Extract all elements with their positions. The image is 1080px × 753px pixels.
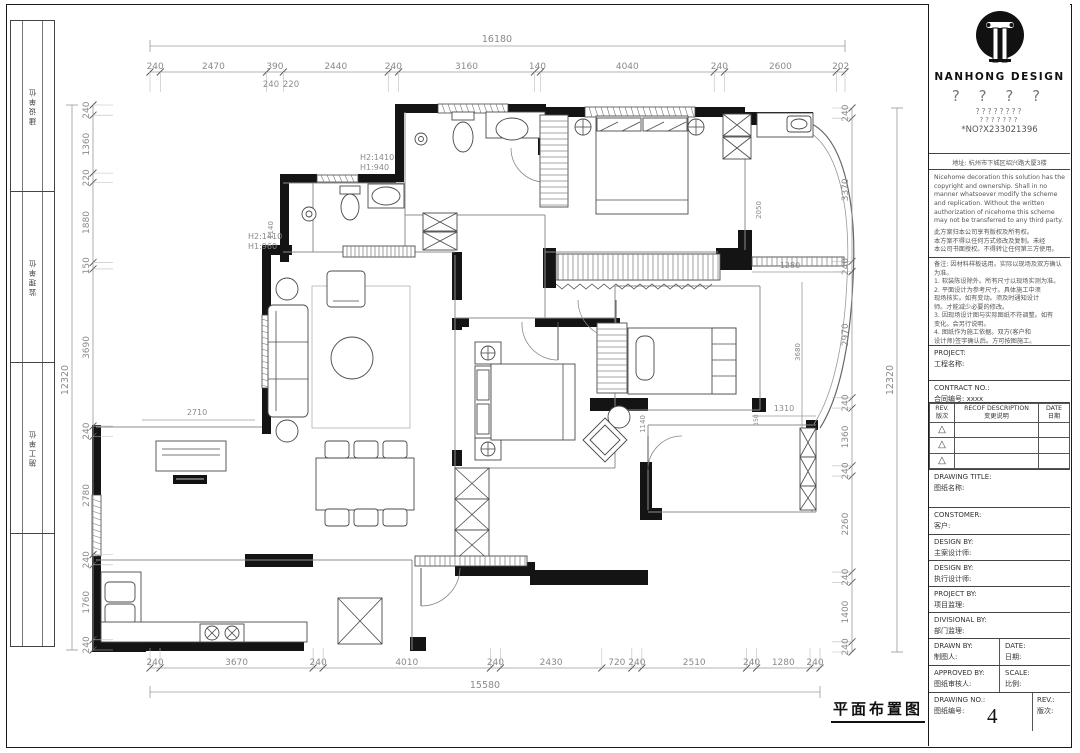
revision-row: △ bbox=[930, 453, 1070, 468]
side-cell-col bbox=[11, 534, 23, 646]
dim-label: 2780 bbox=[82, 484, 92, 507]
field-label-cn: 合同编号: xxxx bbox=[934, 394, 1065, 404]
dim-label: 240 bbox=[82, 636, 92, 653]
side-cell-empty bbox=[10, 533, 55, 647]
field-label-cn: 图纸编号: bbox=[934, 706, 1027, 717]
dim-label: 1280 bbox=[772, 658, 795, 668]
brand-tagline-3: ??????? bbox=[934, 116, 1065, 124]
dim-label: 240 bbox=[841, 104, 851, 121]
field-label-cn: 制图人: bbox=[934, 652, 994, 663]
field-drawn-by: DRAWN BY: 制图人: bbox=[929, 639, 999, 665]
field-label: DRAWING NO.: bbox=[934, 695, 1027, 706]
copyright-chinese: 此方案归本公司享有版权及所有权。 本方案不得以任何方式修改及复制。未经 本公司书… bbox=[934, 229, 1065, 255]
label-150: 150 bbox=[753, 414, 760, 426]
dim-label: 240 bbox=[841, 568, 851, 585]
label-2050: 2050 bbox=[755, 201, 763, 219]
field-label: DATE: bbox=[1005, 641, 1065, 652]
field-design-lead: DESIGN BY: 主案设计师: bbox=[929, 535, 1070, 561]
field-contract: CONTRACT NO.: 合同编号: xxxx bbox=[929, 381, 1070, 403]
floor-plan-canvas: 2402470390244024031601404040240260020224… bbox=[0, 0, 1080, 753]
label-h2-bath1: H2:1410 bbox=[360, 153, 394, 162]
field-label: REV.: bbox=[1037, 695, 1066, 706]
serial-number: *NO?X233021396 bbox=[934, 125, 1065, 135]
dim-label: 2430 bbox=[540, 658, 563, 668]
field-label-cn: 工程名称: bbox=[934, 359, 1065, 370]
title-block: NANHONG DESIGN ? ? ? ? ???????? ??????? … bbox=[928, 4, 1070, 746]
field-label: APPROVED BY: bbox=[934, 668, 994, 679]
dim-label: 720 bbox=[608, 658, 625, 668]
dim-label: 3160 bbox=[455, 62, 478, 72]
dim-label: 140 bbox=[529, 62, 546, 72]
revision-row: △ bbox=[930, 422, 1070, 437]
rev-col-header-cn: 版次 bbox=[936, 413, 948, 420]
dim-label: 3670 bbox=[225, 658, 248, 668]
field-label-cn: 日期: bbox=[1005, 652, 1065, 663]
dim-label: 1400 bbox=[841, 600, 851, 623]
label-1140-bath: 1140 bbox=[267, 221, 275, 239]
field-label: DRAWN BY: bbox=[934, 641, 994, 652]
dim-label: 240 bbox=[82, 551, 92, 568]
side-cell-col bbox=[11, 192, 23, 362]
nanhong-logo-icon bbox=[973, 10, 1027, 64]
dim-label: 1880 bbox=[82, 211, 92, 234]
field-label: SCALE: bbox=[1005, 668, 1065, 679]
drawing-title: 平面布置图 bbox=[831, 698, 925, 723]
dim-label: 240 bbox=[82, 101, 92, 118]
field-rev: REV.: 版次: bbox=[1032, 693, 1070, 731]
dim-label: 3690 bbox=[82, 336, 92, 359]
field-label: CONTRACT NO.: bbox=[934, 383, 1065, 394]
field-drawn-date: DRAWN BY: 制图人: DATE: 日期: bbox=[929, 639, 1070, 666]
field-approved-by: APPROVED BY: 图纸审核人: bbox=[929, 666, 999, 692]
label-1280: 1280 bbox=[780, 261, 800, 270]
dim-label: 240 bbox=[841, 462, 851, 479]
label-3680: 3680 bbox=[794, 343, 802, 361]
notes-section: 备注: 因材料样板选用。实际以现场及双方确认为准。 1. 软装陈设除外。所有尺寸… bbox=[929, 258, 1070, 346]
dim-left-total: 12320 bbox=[60, 365, 71, 395]
field-label-cn: 图纸名称: bbox=[934, 483, 1065, 494]
dim-label: 2970 bbox=[841, 323, 851, 346]
dim-label: 4010 bbox=[395, 658, 418, 668]
field-label-cn: 图纸审核人: bbox=[934, 679, 994, 690]
field-approved-scale: APPROVED BY: 图纸审核人: SCALE: 比例: bbox=[929, 666, 1070, 693]
field-drawing-title: DRAWING TITLE: 图纸名称: bbox=[929, 470, 1070, 508]
dim-label: 2470 bbox=[202, 62, 225, 72]
side-cell-col bbox=[42, 534, 54, 646]
label-1140-bed: 1140 bbox=[639, 415, 647, 433]
side-cell-col bbox=[42, 363, 54, 533]
dim-bottom-total: 15580 bbox=[470, 680, 500, 691]
field-label: PROJECT BY: bbox=[934, 589, 1065, 600]
dim-label: 2600 bbox=[769, 62, 792, 72]
field-label: DESIGN BY: bbox=[934, 563, 1065, 574]
field-label: DESIGN BY: bbox=[934, 537, 1065, 548]
date-col-header-cn: 日期 bbox=[1048, 413, 1060, 420]
label-h1-bath2: H1:960 bbox=[248, 242, 277, 251]
dim-label: 3370 bbox=[841, 178, 851, 201]
dim-label: 240 bbox=[841, 258, 851, 275]
desc-col-header-cn: 变更说明 bbox=[984, 413, 1009, 420]
brand-tagline-2: ???????? bbox=[934, 107, 1065, 116]
revision-row: △ bbox=[930, 438, 1070, 453]
rev-col-header: REV. bbox=[935, 405, 949, 412]
dim-label: 4040 bbox=[616, 62, 639, 72]
dim-right-total: 12320 bbox=[885, 365, 896, 395]
sheet-side-table: 建设单位 监理单位 施工单位 bbox=[10, 20, 55, 647]
brand-tagline-1: ? ? ? ? bbox=[934, 87, 1065, 105]
side-cell-label: 施工单位 bbox=[27, 429, 38, 467]
field-project: PROJECT: 工程名称: bbox=[929, 346, 1070, 381]
dim-label: 2440 bbox=[324, 62, 347, 72]
field-label: CONSTOMER: bbox=[934, 510, 1065, 521]
label-h2-bath2: H2:1410 bbox=[248, 232, 282, 241]
side-cell-owner: 建设单位 bbox=[10, 20, 55, 191]
date-col-header: DATE bbox=[1046, 405, 1062, 412]
dim-label: 240 bbox=[841, 394, 851, 411]
field-label: DRAWING TITLE: bbox=[934, 472, 1065, 483]
furniture-layer bbox=[101, 112, 844, 644]
revision-table: REV.版次 RECOF DESCRIPTION变更说明 DATE日期 △ △ … bbox=[929, 403, 1070, 470]
side-cell-col bbox=[11, 21, 23, 191]
field-label-cn: 版次: bbox=[1037, 706, 1066, 717]
field-label: PROJECT: bbox=[934, 348, 1065, 359]
dim-label: 220 bbox=[82, 169, 92, 186]
brand-name: NANHONG DESIGN bbox=[934, 71, 1065, 83]
dim-top-sub-240: 240 bbox=[263, 80, 279, 90]
dim-top-total: 16180 bbox=[482, 34, 512, 45]
dim-label: 390 bbox=[266, 62, 283, 72]
dim-label: 1760 bbox=[82, 591, 92, 614]
field-date: DATE: 日期: bbox=[999, 639, 1070, 665]
dim-label: 1360 bbox=[841, 425, 851, 448]
dim-label: 2260 bbox=[841, 512, 851, 535]
revision-triangle-icon: △ bbox=[938, 455, 946, 466]
side-cell-col bbox=[42, 192, 54, 362]
field-project-by: PROJECT BY: 项目监理: bbox=[929, 587, 1070, 613]
dim-label: 240 bbox=[82, 422, 92, 439]
title-block-logo-section: NANHONG DESIGN ? ? ? ? ???????? ??????? … bbox=[929, 4, 1070, 154]
field-label-cn: 主案设计师: bbox=[934, 548, 1065, 559]
field-label-cn: 项目监理: bbox=[934, 600, 1065, 611]
dim-label: 1360 bbox=[82, 132, 92, 155]
revision-triangle-icon: △ bbox=[938, 424, 946, 435]
side-cell-col bbox=[42, 21, 54, 191]
label-2710: 2710 bbox=[187, 408, 207, 417]
copyright-section: Nicehome decoration this solution has th… bbox=[929, 170, 1070, 258]
field-label-cn: 比例: bbox=[1005, 679, 1065, 690]
side-cell-col bbox=[11, 363, 23, 533]
side-cell-supervisor: 监理单位 bbox=[10, 191, 55, 362]
side-cell-contractor: 施工单位 bbox=[10, 362, 55, 533]
dim-label: 2510 bbox=[683, 658, 706, 668]
page-number: 4 bbox=[987, 701, 998, 731]
dim-label: 240 bbox=[841, 638, 851, 655]
field-label-cn: 部门监理: bbox=[934, 626, 1065, 637]
field-label-cn: 执行设计师: bbox=[934, 574, 1065, 585]
field-label: DIVISIONAL BY: bbox=[934, 615, 1065, 626]
field-drawing-no: DRAWING NO.: 图纸编号: 4 REV.: 版次: bbox=[929, 693, 1070, 731]
field-divisional-by: DIVISIONAL BY: 部门监理: bbox=[929, 613, 1070, 639]
company-address: 地址: 杭州市下城区绍兴路大厦3楼 bbox=[929, 154, 1070, 170]
label-h1-bath1: H1:940 bbox=[360, 163, 389, 172]
desc-col-header: RECOF DESCRIPTION bbox=[964, 405, 1029, 412]
side-cell-label: 监理单位 bbox=[27, 258, 38, 296]
field-label-cn: 客户: bbox=[934, 521, 1065, 532]
field-scale: SCALE: 比例: bbox=[999, 666, 1070, 692]
dim-top-sub-220: 220 bbox=[283, 80, 299, 90]
copyright-english: Nicehome decoration this solution has th… bbox=[934, 174, 1065, 226]
drawing-sheet: 2402470390244024031601404040240260020224… bbox=[0, 0, 1080, 753]
side-cell-label: 建设单位 bbox=[27, 87, 38, 125]
field-customer: CONSTOMER: 客户: bbox=[929, 508, 1070, 535]
revision-triangle-icon: △ bbox=[938, 439, 946, 450]
field-design-exec: DESIGN BY: 执行设计师: bbox=[929, 561, 1070, 587]
label-1310: 1310 bbox=[774, 404, 794, 413]
